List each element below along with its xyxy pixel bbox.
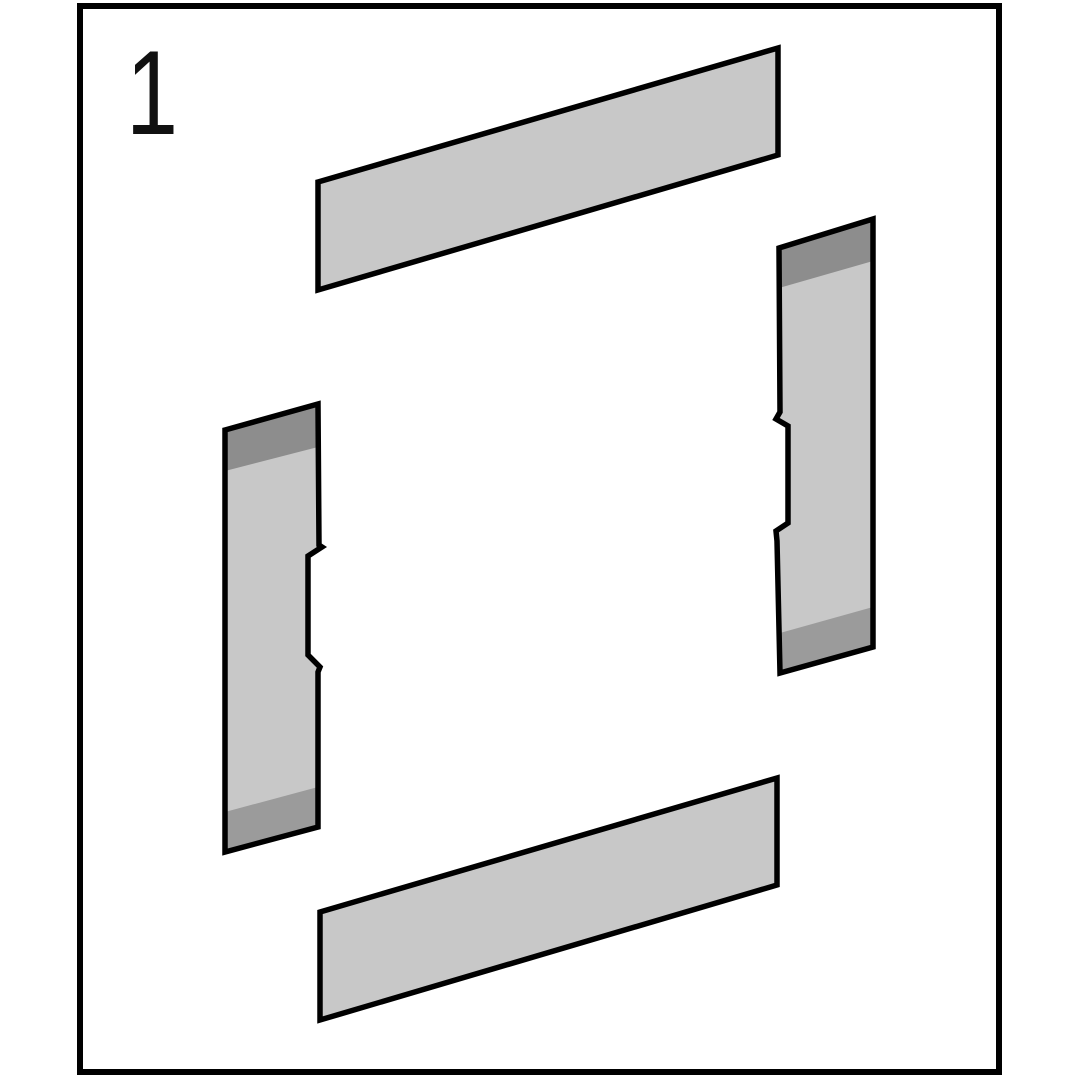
panel-bottom-rail-face	[320, 778, 777, 1020]
panel-top-rail	[318, 48, 778, 290]
panel-top-rail-face	[318, 48, 778, 290]
instruction-page: 1	[0, 0, 1080, 1080]
panels-diagram	[0, 0, 1080, 1080]
step-number: 1	[126, 33, 178, 153]
panel-left-stile	[225, 404, 322, 852]
panel-bottom-rail	[320, 778, 777, 1020]
panel-right-stile	[776, 219, 873, 673]
panels-layer	[225, 48, 873, 1020]
